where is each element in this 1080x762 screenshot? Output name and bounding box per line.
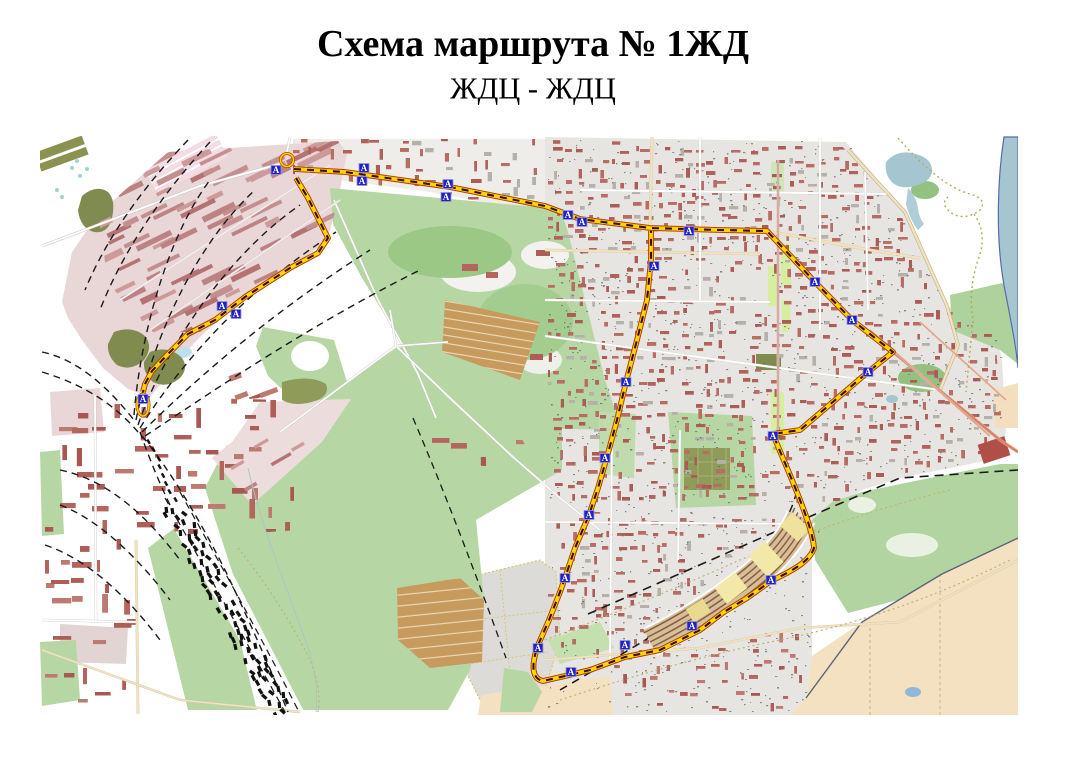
svg-text:А: А xyxy=(768,575,775,585)
svg-text:А: А xyxy=(812,277,819,287)
svg-text:А: А xyxy=(602,453,609,463)
svg-text:А: А xyxy=(535,643,542,653)
svg-text:А: А xyxy=(770,431,777,441)
svg-text:А: А xyxy=(579,217,586,227)
svg-text:ЖДЦ - ЖДЦ: ЖДЦ - ЖДЦ xyxy=(450,72,616,106)
svg-text:А: А xyxy=(686,226,693,236)
svg-text:А: А xyxy=(568,667,575,677)
svg-text:А: А xyxy=(233,309,240,319)
svg-text:А: А xyxy=(273,165,280,175)
svg-text:А: А xyxy=(586,510,593,520)
svg-text:А: А xyxy=(219,301,226,311)
svg-text:А: А xyxy=(689,621,696,631)
svg-text:Схема маршрута № 1ЖД: Схема маршрута № 1ЖД xyxy=(317,23,749,65)
svg-text:А: А xyxy=(651,261,658,271)
svg-text:А: А xyxy=(565,210,572,220)
svg-text:А: А xyxy=(359,176,366,186)
svg-text:А: А xyxy=(443,192,450,202)
svg-text:А: А xyxy=(562,573,569,583)
svg-text:А: А xyxy=(623,377,630,387)
svg-text:А: А xyxy=(622,640,629,650)
svg-text:А: А xyxy=(849,315,856,325)
svg-text:А: А xyxy=(865,367,872,377)
svg-text:А: А xyxy=(361,163,368,173)
svg-text:А: А xyxy=(140,394,147,404)
svg-text:А: А xyxy=(445,179,452,189)
